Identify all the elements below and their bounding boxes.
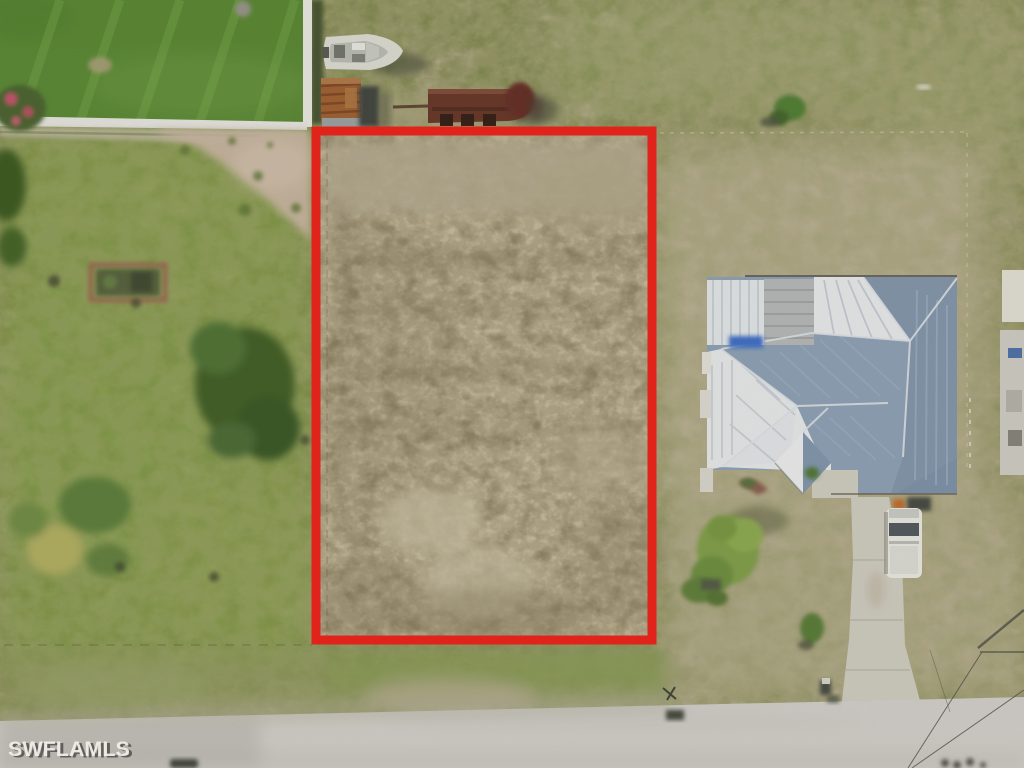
svg-text:SWFLAMLS: SWFLAMLS <box>8 737 130 761</box>
